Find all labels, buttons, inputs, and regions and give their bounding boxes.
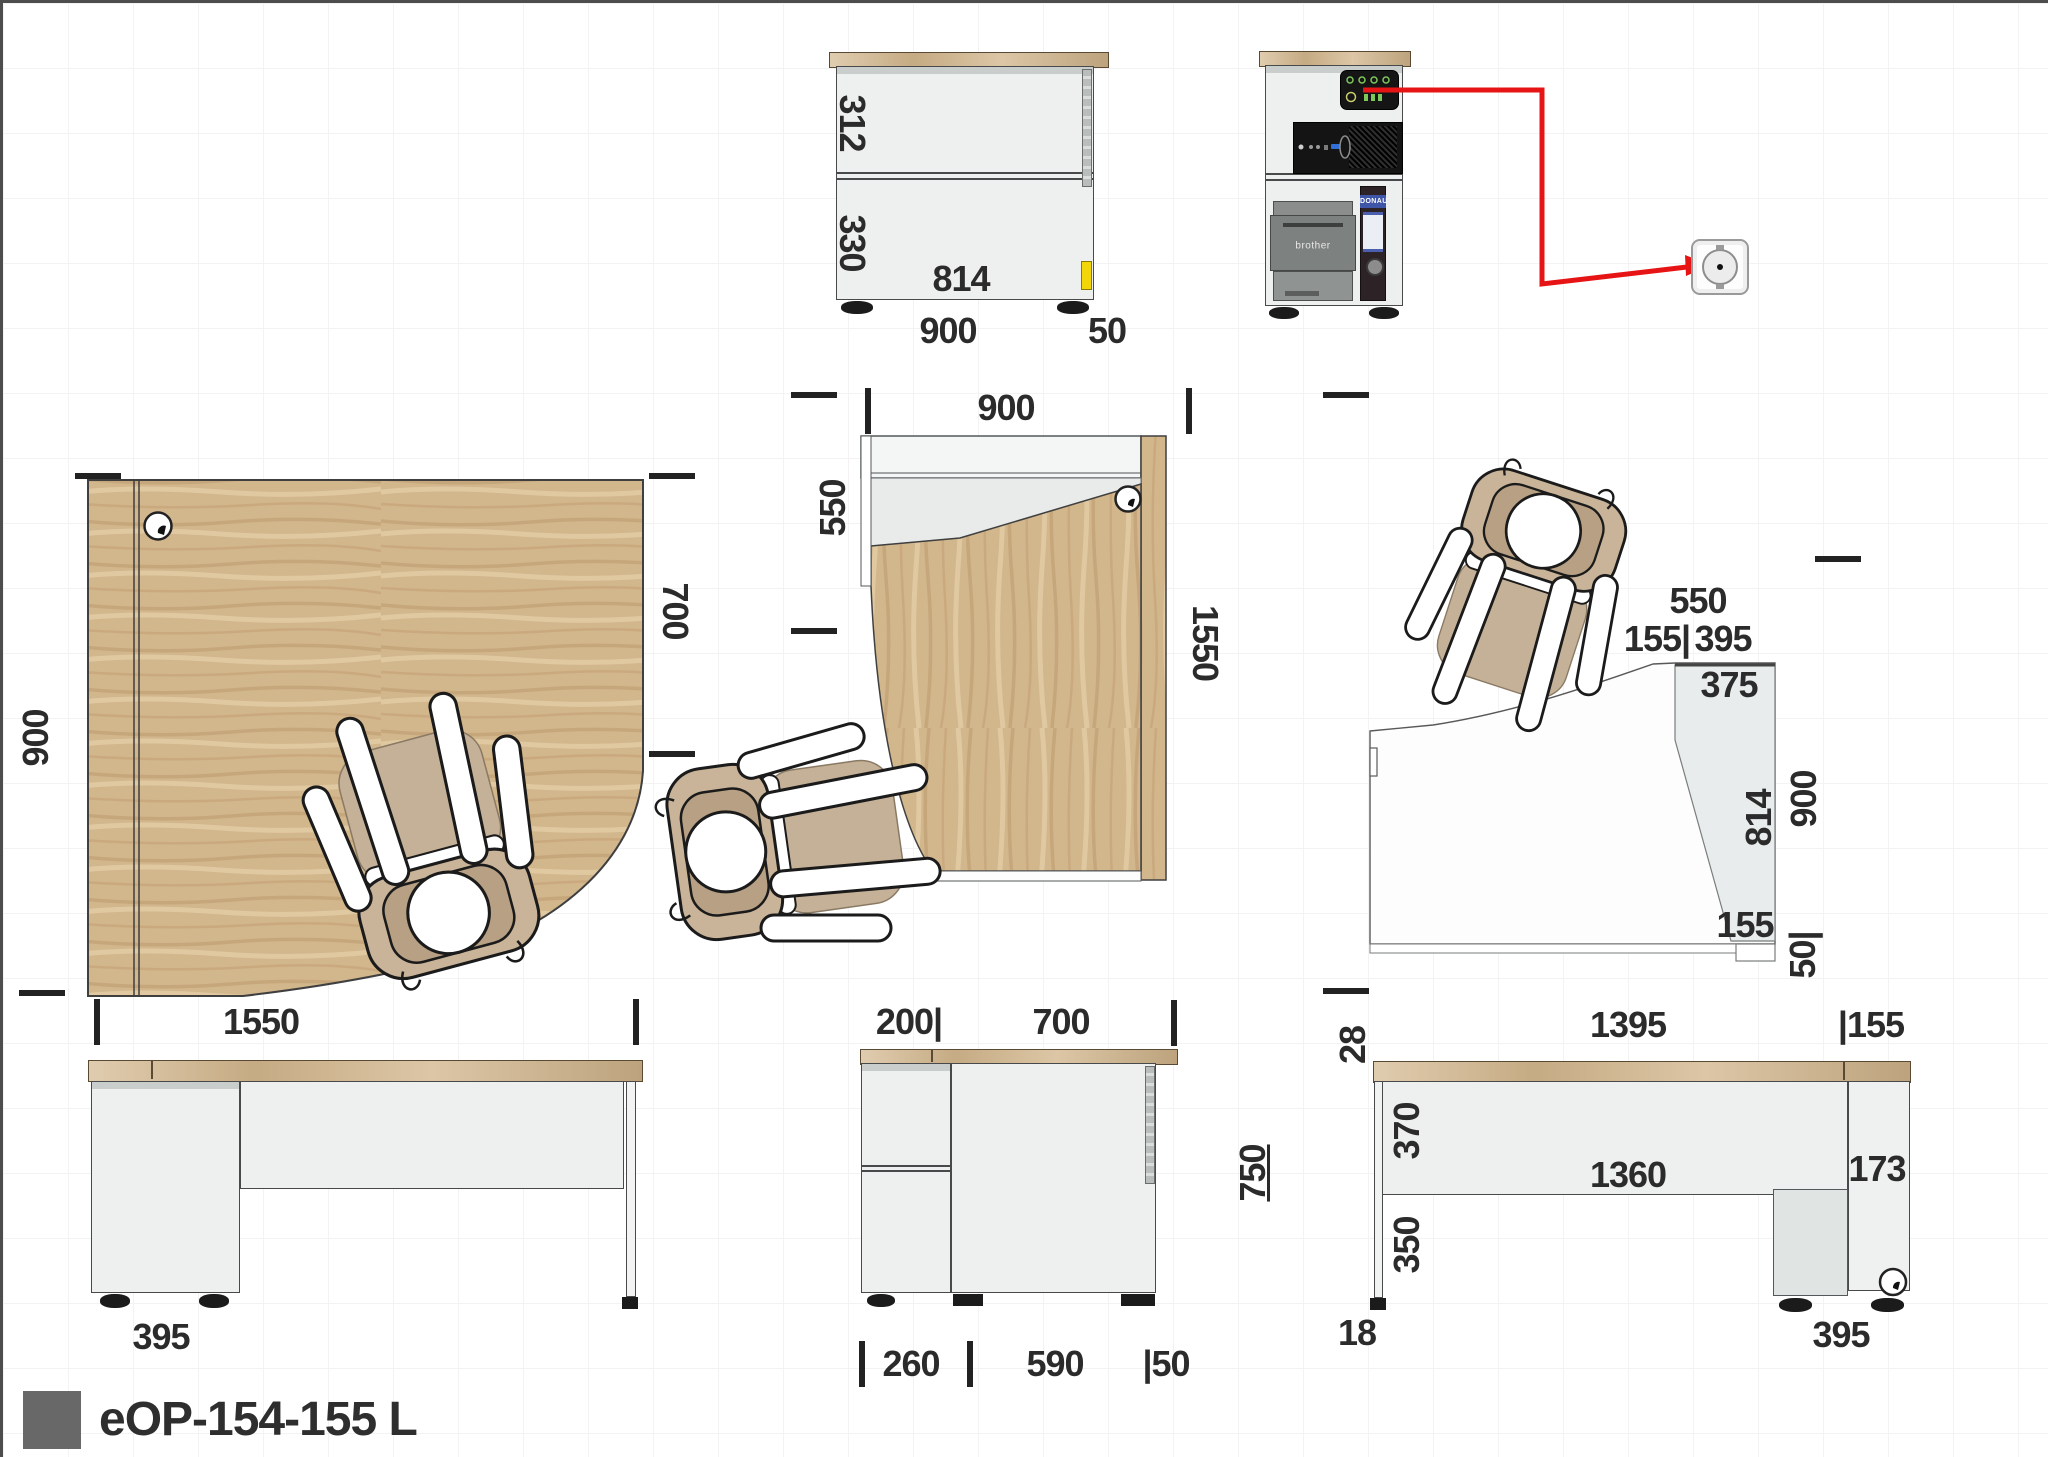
leg-foot xyxy=(622,1297,638,1309)
dim-tick xyxy=(1323,392,1369,398)
cabinet-foot xyxy=(867,1294,895,1307)
worktop-joint xyxy=(1843,1062,1845,1080)
product-code: eOP-154-155 L xyxy=(99,1396,417,1444)
dim-tick xyxy=(75,473,121,479)
side-view-shelf-line xyxy=(862,1170,950,1172)
dim-tick xyxy=(967,1341,973,1387)
dim-395c: 395 xyxy=(1812,1317,1869,1353)
side-view-connector-strip xyxy=(1145,1066,1155,1184)
dim-155b: 155 xyxy=(1716,907,1773,943)
front-left-worktop xyxy=(88,1060,643,1082)
cabinet-foot xyxy=(199,1294,229,1308)
under-desk-cabinet-top xyxy=(861,436,1141,478)
dim-590: 590 xyxy=(1026,1346,1083,1382)
dim-900b: 900 xyxy=(1786,770,1822,827)
dim-550-left: 550 xyxy=(815,479,851,536)
dim-350: 350 xyxy=(1389,1216,1425,1273)
cabinet-foot xyxy=(1779,1298,1812,1312)
side-view-desk-panel xyxy=(951,1063,1156,1293)
dim-50b: 50| xyxy=(1785,931,1821,978)
desk-foot-bar xyxy=(1121,1294,1155,1306)
dim-900-top: 900 xyxy=(977,390,1034,426)
lock-grommet xyxy=(1865,1255,1921,1311)
product-code-row: eOP-154-155 L xyxy=(23,1391,417,1449)
dim-155c: |155 xyxy=(1838,1007,1904,1043)
dim-700-right: 700 xyxy=(657,582,693,639)
dim-tick xyxy=(1186,388,1192,434)
back-view-cabinet-inset xyxy=(1773,1189,1848,1296)
dim-814b: 814 xyxy=(1741,789,1777,846)
dim-tick xyxy=(19,990,65,996)
dim-1550: 1550 xyxy=(223,1004,299,1040)
dim-173: 173 xyxy=(1848,1151,1905,1187)
dim-tick xyxy=(1171,1000,1177,1046)
cable-grommet xyxy=(145,513,172,540)
dim-900-left: 900 xyxy=(18,709,54,766)
back-view-worktop xyxy=(1373,1061,1911,1083)
worktop-joint xyxy=(151,1061,153,1079)
dim-tick xyxy=(633,999,639,1045)
dim-395: 395 xyxy=(132,1319,189,1355)
desk-edge-strip xyxy=(1141,436,1166,880)
office-chair-top-view xyxy=(278,671,578,1001)
dim-18: 18 xyxy=(1338,1315,1376,1351)
outlet-notch xyxy=(1716,245,1724,250)
color-swatch xyxy=(23,1391,81,1449)
office-chair-top-view xyxy=(653,676,953,1006)
dim-tick xyxy=(791,628,837,634)
edge-50-block xyxy=(1736,944,1775,961)
wall-outlet xyxy=(1691,239,1749,295)
dim-tick xyxy=(859,1341,865,1387)
side-view-cabinet xyxy=(861,1063,951,1293)
dim-370: 370 xyxy=(1389,1102,1425,1159)
dim-1360: 1360 xyxy=(1590,1157,1666,1193)
dim-550: 550 xyxy=(1669,583,1726,619)
front-left-cabinet xyxy=(91,1081,240,1293)
dim-260: 260 xyxy=(882,1346,939,1382)
desk-foot-bar xyxy=(953,1294,983,1306)
dim-1395: 1395 xyxy=(1590,1007,1666,1043)
dim-tick xyxy=(649,473,695,479)
desk-bottom-edge-band xyxy=(1370,944,1775,953)
dim-1550-right: 1550 xyxy=(1187,605,1223,681)
desk-front-edge-band xyxy=(933,871,1141,881)
cabinet-foot xyxy=(100,1294,130,1308)
leg-foot xyxy=(1370,1298,1386,1310)
worktop-joint xyxy=(931,1050,933,1062)
technical-drawing-sheet: 312 330 814 900 50 brother DONAU xyxy=(0,0,2048,1457)
dim-395b: 395 xyxy=(1694,621,1751,657)
outlet-center-dot xyxy=(1717,264,1723,270)
cable-grommet xyxy=(1116,487,1141,512)
dim-tick xyxy=(791,392,837,398)
dim-tick xyxy=(1815,556,1861,562)
front-left-leg xyxy=(626,1081,636,1297)
dim-750-height: 750 xyxy=(1235,1144,1271,1201)
desk-left-edge-band xyxy=(861,436,871,586)
front-left-cabinet-strip xyxy=(92,1082,239,1089)
office-chair-top-view xyxy=(1371,435,1671,765)
dim-28: 28 xyxy=(1335,1026,1371,1064)
dim-700: 700 xyxy=(1032,1004,1089,1040)
power-cable-routing xyxy=(3,3,2048,403)
dim-tick xyxy=(1323,988,1369,994)
side-view-shelf-line xyxy=(862,1165,950,1167)
dim-200: 200| xyxy=(876,1004,942,1040)
side-view-cabinet-strip xyxy=(862,1064,950,1071)
dim-tick xyxy=(94,999,100,1045)
front-left-modesty-panel xyxy=(240,1081,624,1189)
dim-50-edge: |50 xyxy=(1142,1346,1189,1382)
dim-375: 375 xyxy=(1700,667,1757,703)
outlet-notch xyxy=(1716,284,1724,289)
